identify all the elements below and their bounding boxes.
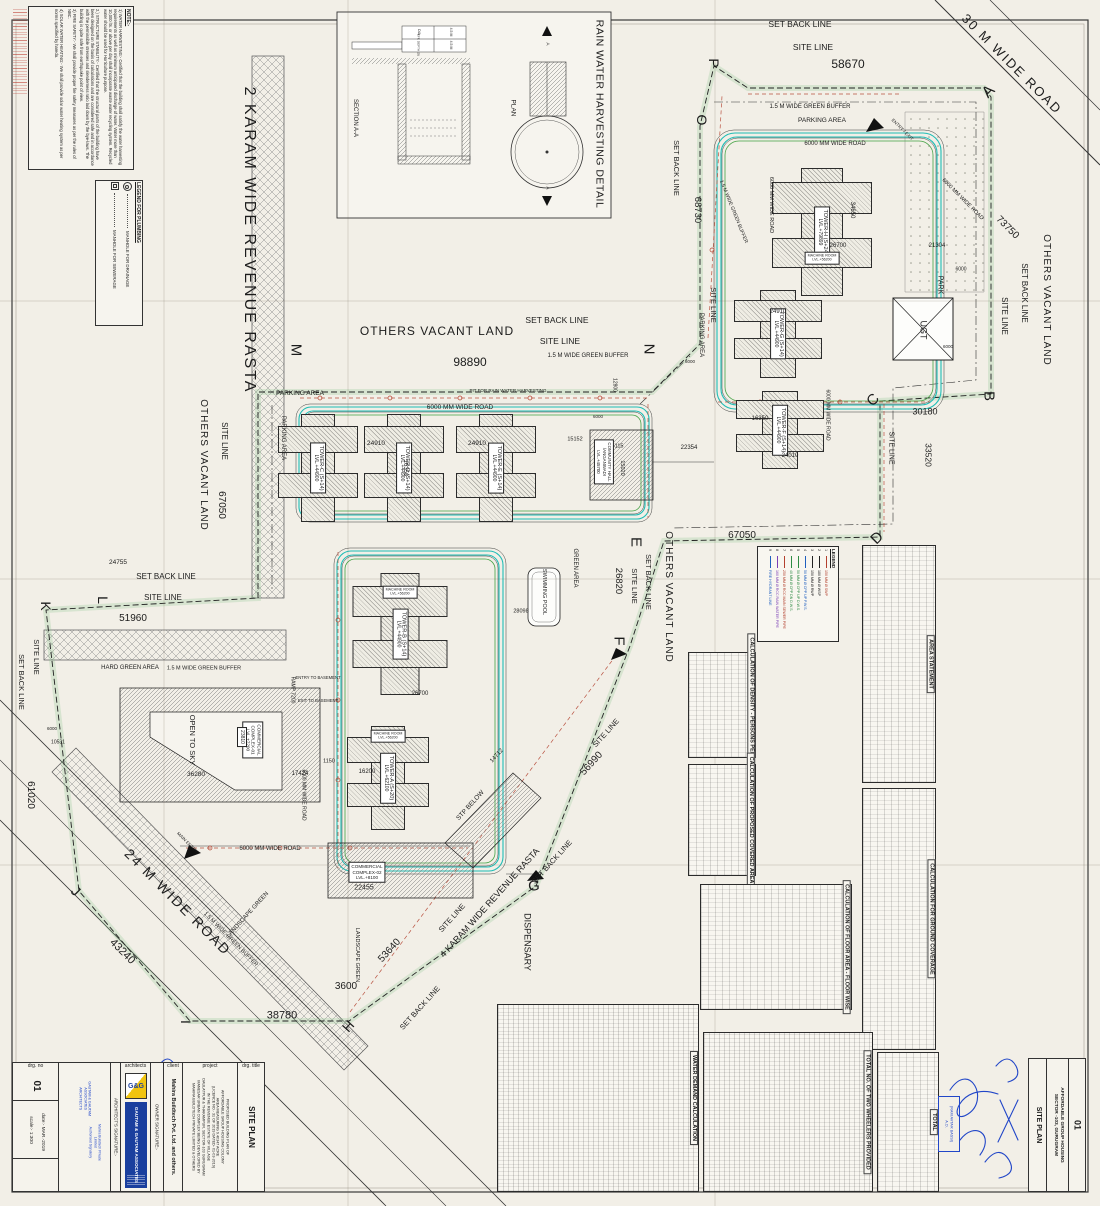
plan-label: K bbox=[39, 601, 53, 610]
architects-band: GAUTAM & GAUTAM ASSOCIATES bbox=[125, 1102, 147, 1188]
plan-label: I bbox=[179, 1020, 193, 1024]
plan-label: 3600 bbox=[335, 982, 357, 992]
plan-label: 6000 bbox=[685, 360, 695, 365]
plan-label: SET BACK LINE bbox=[644, 554, 652, 610]
plan-label: SET BACK LINE bbox=[768, 20, 831, 29]
pipe-number: 4 bbox=[804, 549, 808, 554]
project-description: PROPOSED BUILDING PLAN OF AFFORDABLE GRO… bbox=[191, 1068, 230, 1186]
plan-label: SITE LINE bbox=[540, 337, 580, 346]
tower-footprint: TOWER-H (S+24) LVL.+79899 bbox=[772, 168, 872, 296]
drawing-s heet: NOTE:- 1) WATER HARVESTING:- Certified t… bbox=[0, 0, 1100, 1206]
table-title: TOTAL NO. OF TWO WHEELERS PROVIDED bbox=[864, 1050, 872, 1174]
plan-label: 12800 bbox=[612, 378, 617, 392]
plan-label: 28098 bbox=[513, 609, 528, 615]
tower-level: LVL.+44900 bbox=[312, 445, 318, 490]
pipe-label: 160 MM Ø RCC RAIN WATER PIPE bbox=[776, 570, 780, 628]
plan-label: L bbox=[96, 596, 110, 604]
plan-label: RAIN WATER HARVESTING DETAIL bbox=[594, 20, 605, 209]
date-value: date:- MAR.-2019 bbox=[39, 1113, 45, 1151]
plan-label: 61020 bbox=[25, 781, 35, 809]
plan-label: A bbox=[545, 186, 550, 189]
pipe-label: 50 MM Ø CPP UP P.W.S. bbox=[804, 570, 808, 611]
building-label: MACHINE ROOM LVL.+56200 bbox=[371, 730, 406, 743]
pipe-legend-row: 6 40 MM Ø CPP DN D.W.S. bbox=[788, 549, 795, 639]
plan-label: M bbox=[289, 344, 304, 357]
right-project-name: AFFORDABLE GROUP HOUSING SECTOR -103, GU… bbox=[1052, 1061, 1064, 1189]
plan-label: 36280 bbox=[187, 772, 205, 779]
plan-label: P bbox=[707, 58, 721, 67]
pipe-color-swatch bbox=[805, 556, 807, 568]
plan-label: 4.5 M bbox=[448, 28, 452, 37]
pipe-color-swatch bbox=[819, 556, 821, 568]
note-item: 2.) STRUCTURE STABILITY:- Certified that… bbox=[79, 9, 100, 167]
tower-footprint: TOWER-G (S+14) LVL.+44900 bbox=[734, 290, 822, 378]
note-item: 4) SOLAR WATER HEATING:- We shall provid… bbox=[54, 9, 65, 167]
calculation-table: CALCULATION OF DENSITY - PERSONS PER ACR… bbox=[688, 652, 756, 758]
plan-label: 6000 MM WIDE ROAD bbox=[825, 389, 830, 440]
pipe-legend-row: 7 250 MM Ø RCC MAIN SEWER PIPE bbox=[781, 549, 788, 639]
legend-label: MANHOLE FOR DRAINAGE bbox=[125, 231, 130, 287]
plan-label: OTHERS VACANT LAND bbox=[1041, 234, 1051, 366]
pipe-color-swatch bbox=[826, 556, 828, 568]
plan-label: 24910 bbox=[468, 441, 486, 448]
plan-label: 6000 bbox=[955, 268, 966, 273]
tower-level: LVL.+44900 bbox=[774, 408, 780, 453]
plan-label: 6000 MM WIDE ROAD bbox=[301, 769, 306, 820]
pipe-color-swatch bbox=[784, 556, 786, 568]
drg-no-header: drg. no bbox=[13, 1063, 58, 1069]
plan-label: 98890 bbox=[453, 356, 486, 368]
plan-label: 24755 bbox=[109, 560, 127, 567]
plan-label: PIT FOR RAIN WATER HARVESTING bbox=[469, 389, 546, 394]
legend-row-drainage: MANHOLE FOR DRAINAGE bbox=[123, 182, 132, 324]
plan-label: OTHERS VACANT LAND bbox=[360, 325, 514, 337]
drg-no-value: 01 bbox=[30, 1080, 42, 1091]
scale-value: scale:- 1:300 bbox=[27, 1116, 33, 1143]
plan-label: 26820 bbox=[613, 568, 623, 594]
pipe-number: 3 bbox=[811, 549, 815, 554]
plan-label: 34650 bbox=[849, 202, 855, 219]
calculation-table: CALCULATION OF FLOOR AREA - FLOOR WISE bbox=[700, 884, 852, 1010]
tower-label: TOWER-E (S+14) LVL.+44900 bbox=[488, 443, 504, 494]
cell-owner-signature: OWNER SIGNATURE:- bbox=[150, 1062, 163, 1192]
pipe-legend-row: 9 FIRE HYDRANT LINE bbox=[767, 549, 774, 639]
architect-signature-label: ARCHITECT'S SIGNATURE:- bbox=[113, 1098, 118, 1156]
plan-label: PARKING AREA bbox=[798, 118, 846, 125]
pipe-color-swatch bbox=[777, 556, 779, 568]
plan-label: SET BACK LINE bbox=[17, 654, 25, 710]
architects-address-lines bbox=[127, 1175, 145, 1185]
plan-label: EXIT TO BASEMENT bbox=[298, 699, 338, 703]
fold-crease bbox=[163, 0, 165, 1206]
pipe-legend-row: 5 50 MM Ø CPP UP D.W.S. bbox=[795, 549, 802, 639]
pipe-label: FIRE HYDRANT LINE bbox=[769, 570, 773, 605]
plan-label: UGT bbox=[919, 321, 928, 340]
pipe-label: 180 MM Ø WSP bbox=[818, 570, 822, 596]
plan-label: 16200 bbox=[359, 769, 376, 775]
tower-level: LVL.+79899 bbox=[816, 209, 822, 254]
building-label: 23810 bbox=[237, 727, 247, 747]
pipe-color-swatch bbox=[791, 556, 793, 568]
architects-header: architects bbox=[121, 1063, 150, 1069]
cell-client: client Mahira Buildtech Pvt. Ltd. and ot… bbox=[163, 1062, 182, 1192]
plan-label: 22455 bbox=[354, 885, 373, 892]
table-title: AREA STATEMENT bbox=[927, 635, 935, 693]
cell-drg-no: drg. no 01 scale:- 1:300 date:- MAR.-201… bbox=[12, 1062, 58, 1192]
cell-architect-signature: ARCHITECT'S SIGNATURE:- bbox=[110, 1062, 120, 1192]
plan-label: ENTRY TO BASEMENT bbox=[295, 676, 340, 680]
plan-label: 67050 bbox=[216, 491, 226, 519]
plan-label: PLAN bbox=[509, 100, 516, 117]
plan-label: SET BACK LINE bbox=[1020, 263, 1028, 322]
gg-logo-text: G&G bbox=[128, 1083, 144, 1090]
tower-level: LVL.+44900 bbox=[772, 311, 778, 356]
pipe-number: 2 bbox=[818, 549, 822, 554]
tower-label: TOWER-F (S+14) LVL.+44900 bbox=[772, 405, 788, 456]
plan-label: A bbox=[545, 42, 550, 45]
drg-title-value: SITE PLAN bbox=[246, 1106, 256, 1148]
calculation-table: AREA STATEMENT bbox=[862, 545, 936, 783]
plan-label: 26700 bbox=[830, 243, 847, 249]
plan-label: 6000 MM WIDE ROAD bbox=[427, 405, 493, 412]
plan-label: DISPENSARY bbox=[523, 913, 532, 971]
pipe-number: 9 bbox=[769, 549, 773, 554]
plan-label: 6000 bbox=[593, 415, 603, 420]
plan-label: 24910 bbox=[367, 441, 385, 448]
pipe-number: 5 bbox=[797, 549, 801, 554]
note-item: 3) FIRE SAFETY:- We shall provide proper… bbox=[66, 9, 77, 167]
plan-label: SITE LINE bbox=[220, 422, 228, 460]
pipe-legend-row: 1 150 MM Ø SWP bbox=[823, 549, 830, 639]
building-label: MACHINE ROOM LVL.+56200 bbox=[383, 586, 418, 599]
tower-footprint: TOWER-C (S+14) LVL.+44900 bbox=[278, 414, 358, 522]
pipe-color-swatch bbox=[798, 556, 800, 568]
plan-label: 30180 bbox=[912, 408, 937, 417]
plan-label: B bbox=[982, 391, 997, 401]
client-name: Mahira Buildtech Pvt. Ltd. and others. bbox=[170, 1068, 176, 1186]
tower-level: LVL.+44900 bbox=[394, 612, 400, 657]
cell-drg-title: drg. title SITE PLAN bbox=[237, 1062, 265, 1192]
pipe-legend-row: 2 180 MM Ø WSP bbox=[816, 549, 823, 639]
plan-label: SWIMMING POOL bbox=[540, 569, 546, 615]
tower-footprint: TOWER-F (S+14) LVL.+44900 bbox=[736, 391, 824, 469]
building-label: MACHINE ROOM LVL.+56200 bbox=[805, 252, 840, 265]
plan-label: SITE LINE bbox=[1000, 297, 1008, 335]
tower-label: TOWER-H (S+24) LVL.+79899 bbox=[814, 206, 830, 257]
plan-label: 24010 bbox=[782, 453, 799, 459]
tower-label: TOWER-C (S+14) LVL.+44900 bbox=[310, 442, 326, 493]
notes-title: NOTE:- bbox=[125, 9, 132, 167]
plan-label: 2 KARAM WIDE REVENUE RASTA bbox=[241, 87, 257, 394]
plan-label: GREEN AREA bbox=[572, 548, 578, 587]
plumbing-legend-title: LEGEND FOR PLUMBING bbox=[135, 182, 141, 324]
legend-label: MANHOLE FOR SEWERAGE bbox=[113, 230, 118, 289]
plan-label: 6000 bbox=[47, 727, 57, 732]
plan-label: OTHERS VACANT LAND bbox=[198, 399, 208, 531]
plan-label: 16350 bbox=[402, 460, 408, 477]
note-item: 1) WATER HARVESTING:- Certified that the… bbox=[102, 9, 123, 167]
notes-list: 1) WATER HARVESTING:- Certified that the… bbox=[54, 9, 124, 167]
plan-label: PARKING AREA bbox=[280, 416, 286, 460]
plan-label: SITE LINE bbox=[888, 431, 895, 464]
plan-label: 4.5 M bbox=[448, 41, 452, 50]
cell-signatures: GAUTAM & GAUTAM ASSOCIATES ARCHITECTS Ma… bbox=[58, 1062, 110, 1192]
pipe-legend-row: 8 160 MM Ø RCC RAIN WATER PIPE bbox=[774, 549, 781, 639]
right-sheet-number: 01 bbox=[1072, 1120, 1083, 1130]
gg-logo: G&G bbox=[125, 1073, 147, 1099]
plan-label: 16350 bbox=[752, 416, 769, 422]
plan-label: 38780 bbox=[267, 1011, 298, 1022]
table-title: CALCULATION FOR GROUND COVERAGE bbox=[927, 859, 935, 978]
plan-label: 22354 bbox=[681, 445, 698, 451]
pipe-number: 1 bbox=[825, 549, 829, 554]
leader-dots bbox=[115, 193, 116, 227]
tower-level: LVL.+44900 bbox=[490, 446, 496, 491]
plan-label: 68730 bbox=[692, 197, 702, 223]
plan-label: N bbox=[642, 344, 657, 355]
pipe-legend-row: 3 150 MM Ø RWP bbox=[809, 549, 816, 639]
calculation-table: CALCULATION FOR GROUND COVERAGE bbox=[862, 788, 936, 1050]
table-title: WATER DEMAND CALCULATION bbox=[690, 1051, 698, 1145]
table-title: CALCULATION OF FLOOR AREA - FLOOR WISE bbox=[843, 880, 851, 1014]
plan-label: 26700 bbox=[412, 691, 429, 697]
plan-label: 6000 MM WIDE ROAD bbox=[804, 141, 865, 147]
manhole-sewerage-icon bbox=[111, 182, 119, 190]
plan-label: SITE LINE bbox=[793, 43, 833, 52]
plan-label: O bbox=[695, 115, 709, 126]
plan-label: LANDSCAPE GREEN bbox=[353, 928, 359, 982]
approver-stamp: (RAM AVTAR BASSI) A.D. bbox=[938, 1096, 960, 1152]
plan-label: PARKING AREA bbox=[698, 313, 704, 357]
pipe-label: 250 MM Ø RCC MAIN SEWER PIPE bbox=[783, 570, 787, 629]
cell-architects: architects G&G GAUTAM & GAUTAM ASSOCIATE… bbox=[120, 1062, 150, 1192]
plan-label: 10531 bbox=[51, 741, 65, 746]
plan-label: 51960 bbox=[119, 614, 147, 624]
plan-label: 1150 bbox=[323, 759, 335, 765]
plan-label: E bbox=[629, 537, 644, 547]
tower-label: TOWER-G (S+14) LVL.+44900 bbox=[770, 308, 786, 359]
calculation-table: TOTAL NO. OF TWO WHEELERS PROVIDED bbox=[703, 1032, 873, 1192]
plan-label: 6000 MM WIDE ROAD bbox=[239, 846, 300, 852]
plan-label: 1.5 M WIDE GREEN BUFFER bbox=[769, 104, 850, 110]
notes-box: NOTE:- 1) WATER HARVESTING:- Certified t… bbox=[28, 6, 134, 170]
plan-label: SITE LINE bbox=[144, 594, 182, 602]
plan-label: 67050 bbox=[728, 531, 756, 541]
leader-dots bbox=[127, 194, 128, 228]
pipe-color-swatch bbox=[770, 556, 772, 568]
calculation-table: TOTAL bbox=[877, 1052, 939, 1192]
right-title-block: SITE PLAN AFFORDABLE GROUP HOUSING SECTO… bbox=[1028, 1058, 1086, 1192]
right-site-plan: SITE PLAN bbox=[1033, 1107, 1041, 1144]
legend-row-sewerage: MANHOLE FOR SEWERAGE bbox=[111, 182, 119, 324]
plan-label: PARK bbox=[937, 276, 944, 295]
pipe-label: 50 MM Ø CPP UP D.W.S. bbox=[797, 570, 801, 611]
pipe-label: 40 MM Ø CPP DN D.W.S. bbox=[790, 570, 794, 611]
pipe-label: 150 MM Ø SWP bbox=[825, 570, 829, 596]
architects-stamp: GAUTAM & GAUTAM ASSOCIATES ARCHITECTS bbox=[78, 1075, 91, 1123]
fold-crease bbox=[714, 0, 716, 1206]
plan-label: 15020 bbox=[618, 460, 624, 475]
table-title: CALCULATION OF PROPOSED COVERED AREA bbox=[747, 753, 755, 888]
plumbing-legend: LEGEND FOR PLUMBING MANHOLE FOR DRAINAGE… bbox=[95, 180, 143, 326]
plan-label: 33520 bbox=[924, 443, 933, 467]
plan-label: SET BACK LINE bbox=[672, 140, 680, 196]
pipe-legend-title: LEGEND bbox=[831, 549, 836, 639]
pipe-legend-row: 4 50 MM Ø CPP UP P.W.S. bbox=[802, 549, 809, 639]
plan-label: 1.5 M WIDE GREEN BUFFER bbox=[167, 666, 241, 672]
plan-label: 15152 bbox=[567, 437, 582, 443]
plan-label: 24910 bbox=[770, 309, 787, 315]
plan-label: SET BACK LINE bbox=[136, 573, 195, 581]
plan-label: SECTION A-A bbox=[352, 99, 358, 137]
pipe-number: 8 bbox=[776, 549, 780, 554]
calculation-table: CALCULATION OF PROPOSED COVERED AREA bbox=[688, 764, 756, 876]
plan-label: F bbox=[612, 636, 627, 645]
drg-title-header: drg. title bbox=[238, 1063, 264, 1069]
plan-label: SITE LINE bbox=[709, 287, 717, 322]
pipe-color-swatch bbox=[812, 556, 814, 568]
plan-label: HARD GREEN AREA bbox=[101, 665, 159, 671]
plan-label: 21304 bbox=[929, 243, 946, 249]
owner-signature-label: OWNER SIGNATURE:- bbox=[154, 1104, 159, 1150]
plan-label: PARKING AREA bbox=[276, 391, 324, 398]
plan-label: 1.5 M WIDE GREEN BUFFER bbox=[547, 353, 628, 359]
plan-label: OPEN TO SKY bbox=[188, 715, 196, 766]
plan-label: SITE LINE bbox=[630, 568, 638, 603]
corner-red-notes bbox=[13, 8, 27, 94]
plan-label: OTHERS VACANT LAND bbox=[663, 531, 673, 663]
plan-label: SET BACK LINE bbox=[525, 316, 588, 325]
building-label: COMMUNITY HALL /ANGANWADI LVL.+45700 bbox=[594, 439, 614, 484]
plan-label: 6000 bbox=[943, 345, 953, 350]
pipe-legend: LEGEND 1 150 MM Ø SWP 2 180 MM Ø WSP 3 1… bbox=[757, 546, 839, 642]
building-label: COMMERCIAL COMPLEX-02 LVL.+8100 bbox=[348, 862, 385, 883]
plan-label: RAMP 7200 bbox=[290, 677, 295, 704]
plan-label: 58670 bbox=[831, 58, 864, 70]
tower-level: LVL.+62100 bbox=[382, 756, 388, 801]
table-title: TOTAL bbox=[930, 1109, 938, 1135]
calculation-table: WATER DEMAND CALCULATION bbox=[497, 1004, 699, 1192]
plan-label: SITE LINE bbox=[32, 639, 40, 674]
pipe-number: 6 bbox=[790, 549, 794, 554]
client-stamp: Mahira Buildtech Private Limited Authori… bbox=[89, 1120, 102, 1164]
plan-label: 6000 MM WIDE ROAD bbox=[767, 177, 773, 233]
pipe-label: 150 MM Ø RWP bbox=[811, 570, 815, 596]
cell-project: project PROPOSED BUILDING PLAN OF AFFORD… bbox=[182, 1062, 237, 1192]
fold-crease bbox=[0, 300, 1100, 302]
pipe-number: 7 bbox=[783, 549, 787, 554]
tower-footprint: TOWER-E (S+14) LVL.+44900 bbox=[456, 414, 536, 522]
manhole-drainage-icon bbox=[123, 182, 132, 191]
plan-label: EFF. DEPTH (D) bbox=[417, 34, 420, 56]
tower-label: TOWER-B (S+14) LVL.+44900 bbox=[392, 609, 408, 660]
tower-label: TOWER-A (S+20) LVL.+62100 bbox=[380, 753, 396, 804]
